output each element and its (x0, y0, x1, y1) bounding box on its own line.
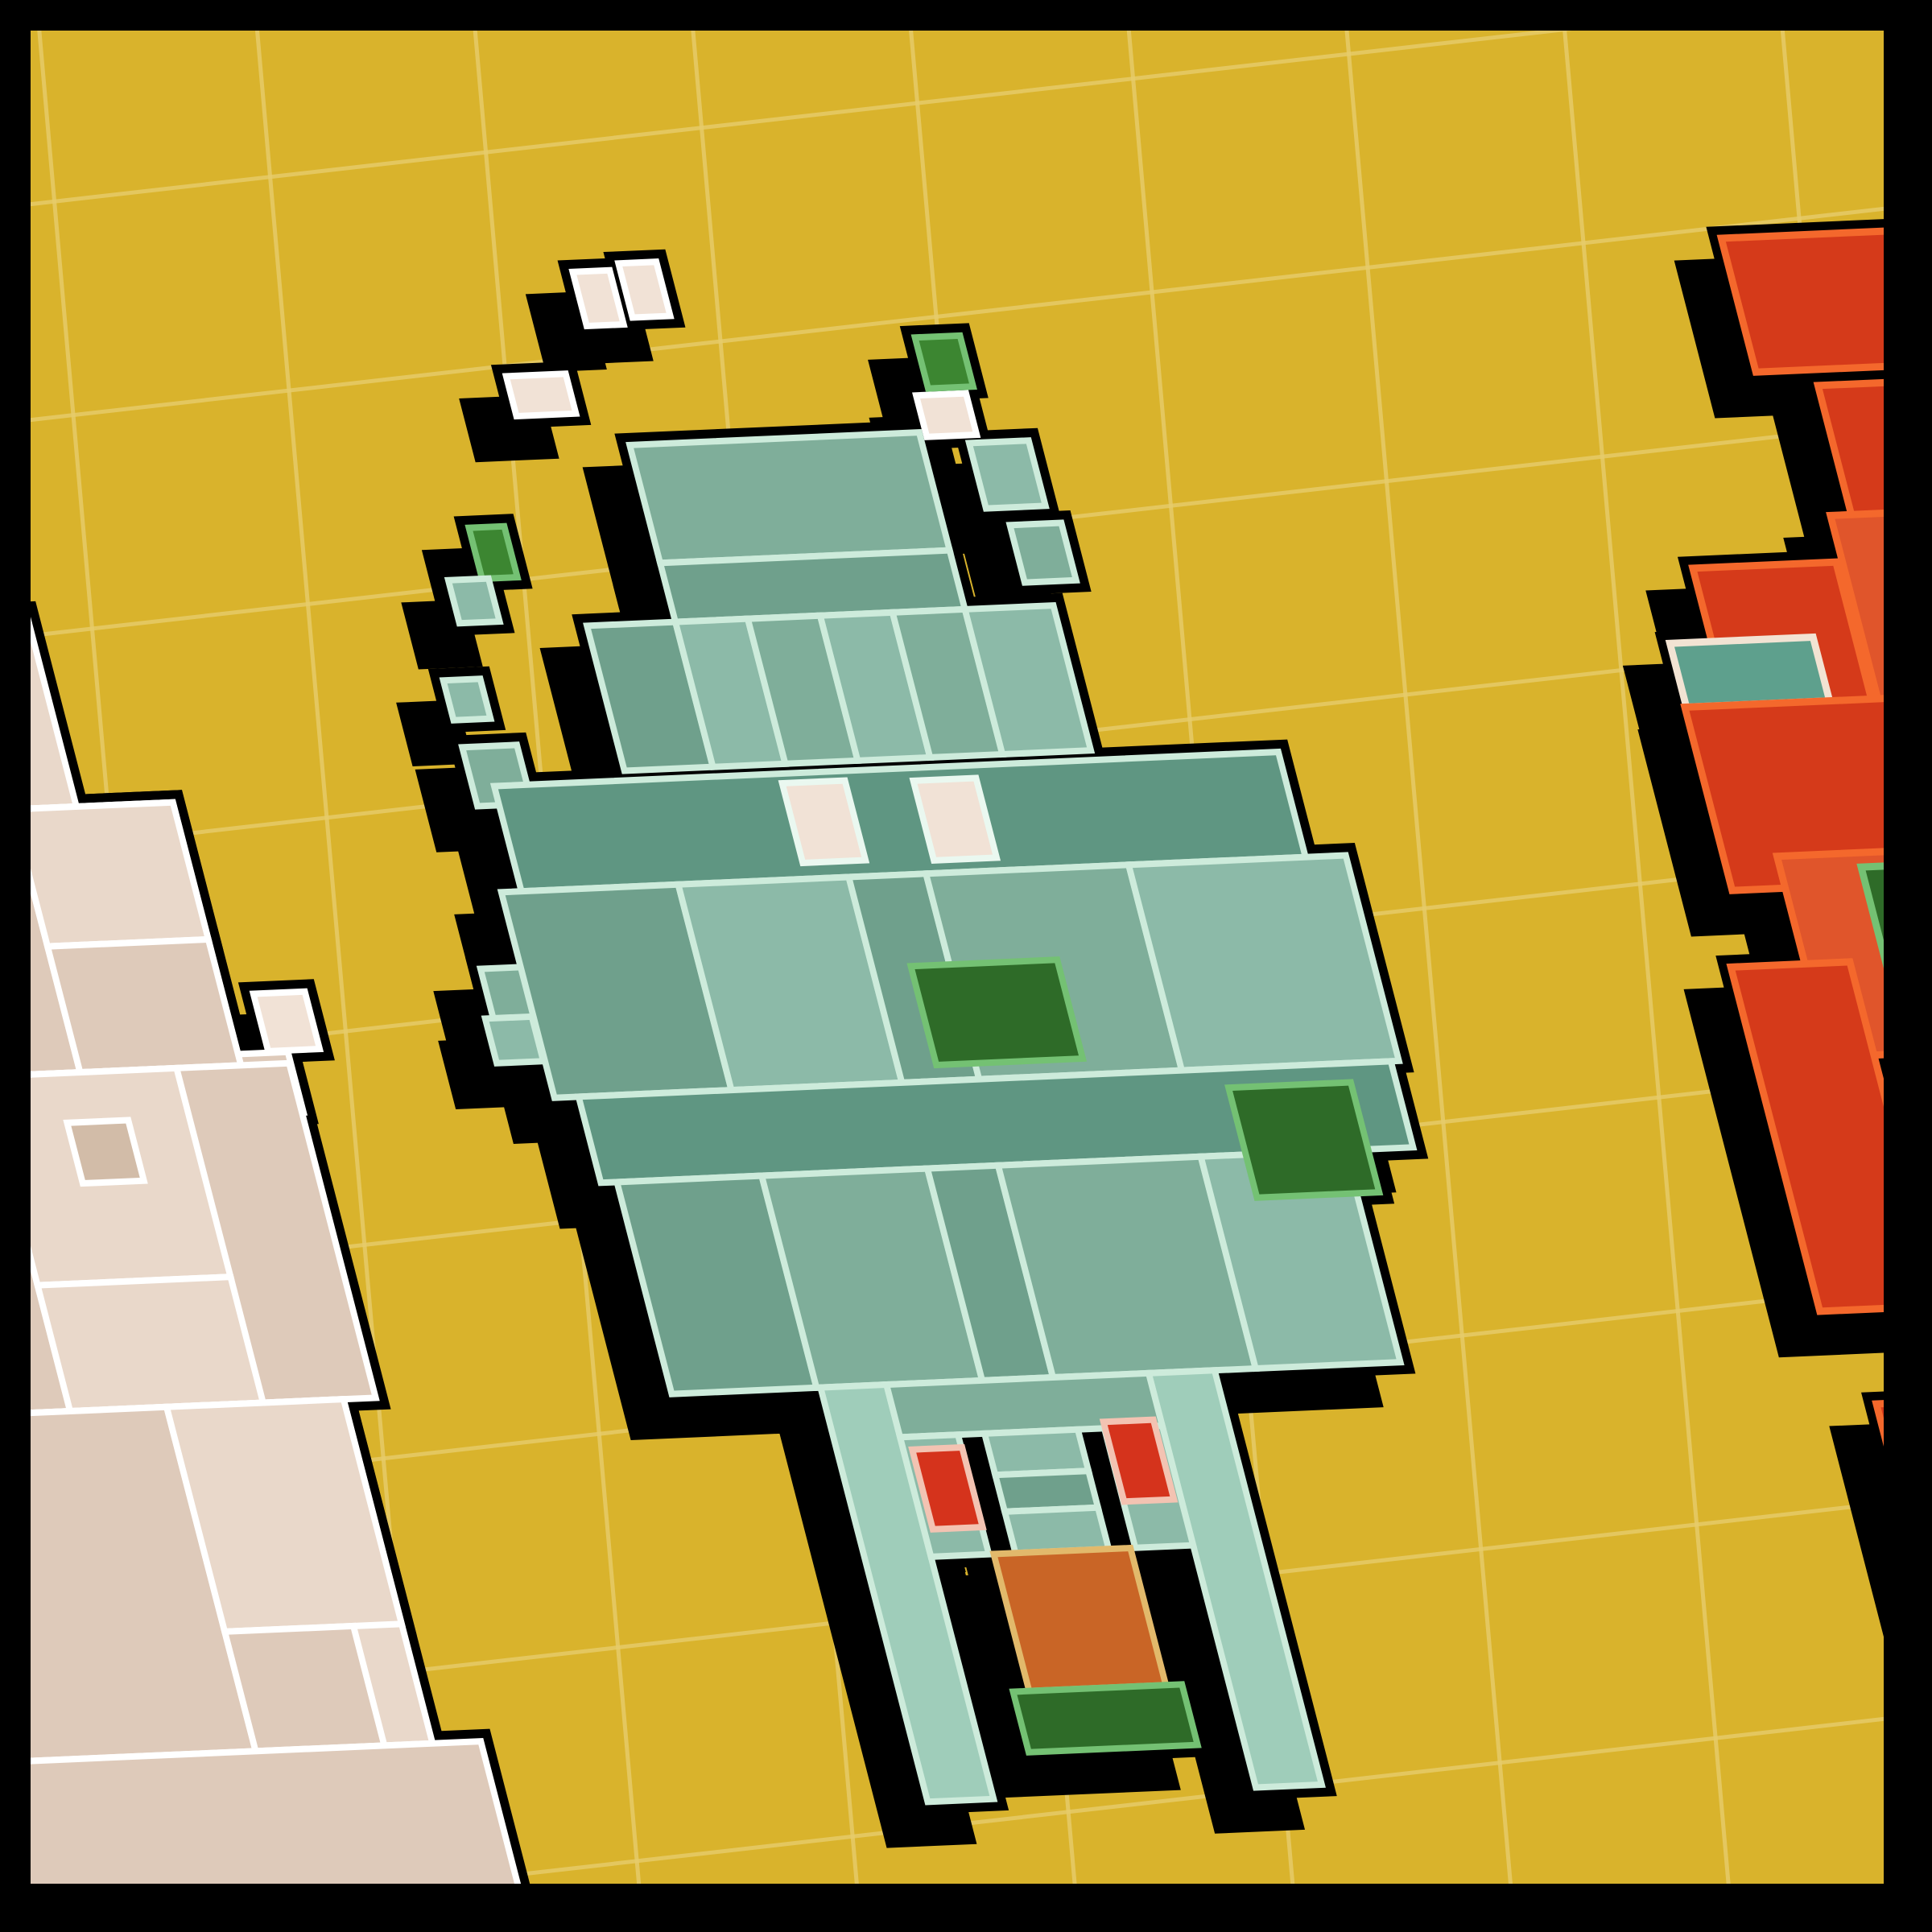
scene-svg (0, 0, 1932, 1932)
game-viewport (0, 0, 1932, 1932)
frame-top (0, 0, 1932, 31)
frame-left (0, 0, 31, 1932)
frame-bottom (0, 1884, 1932, 1932)
frame-right (1884, 0, 1932, 1932)
